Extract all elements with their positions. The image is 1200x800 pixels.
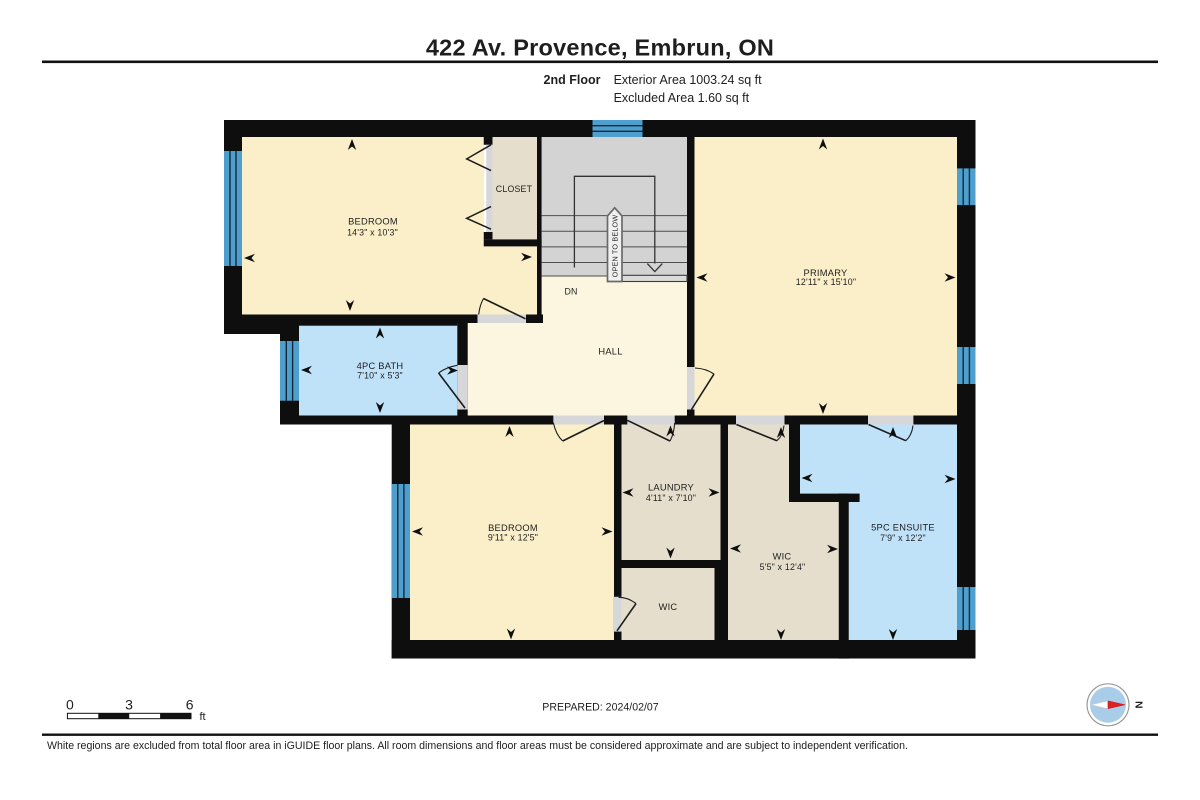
svg-text:12'11" x 15'10": 12'11" x 15'10" — [796, 277, 856, 287]
svg-text:ft: ft — [200, 711, 206, 723]
svg-text:0: 0 — [66, 697, 74, 713]
svg-text:WIC: WIC — [773, 552, 792, 562]
svg-text:5'5" x 12'4": 5'5" x 12'4" — [760, 562, 806, 572]
svg-text:CLOSET: CLOSET — [496, 184, 533, 194]
svg-text:HALL: HALL — [598, 347, 622, 357]
svg-text:4'11" x 7'10": 4'11" x 7'10" — [646, 493, 696, 503]
svg-text:4PC BATH: 4PC BATH — [357, 361, 404, 371]
svg-text:BEDROOM: BEDROOM — [348, 217, 398, 227]
svg-text:BEDROOM: BEDROOM — [488, 523, 538, 533]
svg-text:7'9" x 12'2": 7'9" x 12'2" — [880, 533, 926, 543]
svg-text:DN: DN — [564, 287, 577, 297]
svg-text:5PC ENSUITE: 5PC ENSUITE — [871, 523, 935, 533]
svg-text:7'10" x 5'3": 7'10" x 5'3" — [357, 371, 403, 381]
svg-text:LAUNDRY: LAUNDRY — [648, 483, 694, 493]
svg-text:N: N — [1133, 701, 1145, 709]
svg-text:9'11" x 12'5": 9'11" x 12'5" — [488, 533, 538, 543]
svg-text:6: 6 — [186, 697, 194, 713]
svg-text:WIC: WIC — [659, 602, 678, 612]
svg-text:OPEN TO BELOW: OPEN TO BELOW — [610, 215, 619, 278]
svg-text:Excluded Area 1.60 sq ft: Excluded Area 1.60 sq ft — [614, 91, 750, 105]
svg-text:White regions are excluded fro: White regions are excluded from total fl… — [47, 740, 908, 752]
svg-text:Exterior Area 1003.24 sq ft: Exterior Area 1003.24 sq ft — [614, 73, 763, 87]
svg-text:14'3" x 10'3": 14'3" x 10'3" — [347, 228, 398, 238]
svg-text:422 Av. Provence, Embrun, ON: 422 Av. Provence, Embrun, ON — [426, 35, 774, 61]
svg-text:PREPARED: 2024/02/07: PREPARED: 2024/02/07 — [542, 702, 659, 714]
svg-text:3: 3 — [125, 697, 133, 713]
svg-text:2nd Floor: 2nd Floor — [544, 73, 601, 87]
